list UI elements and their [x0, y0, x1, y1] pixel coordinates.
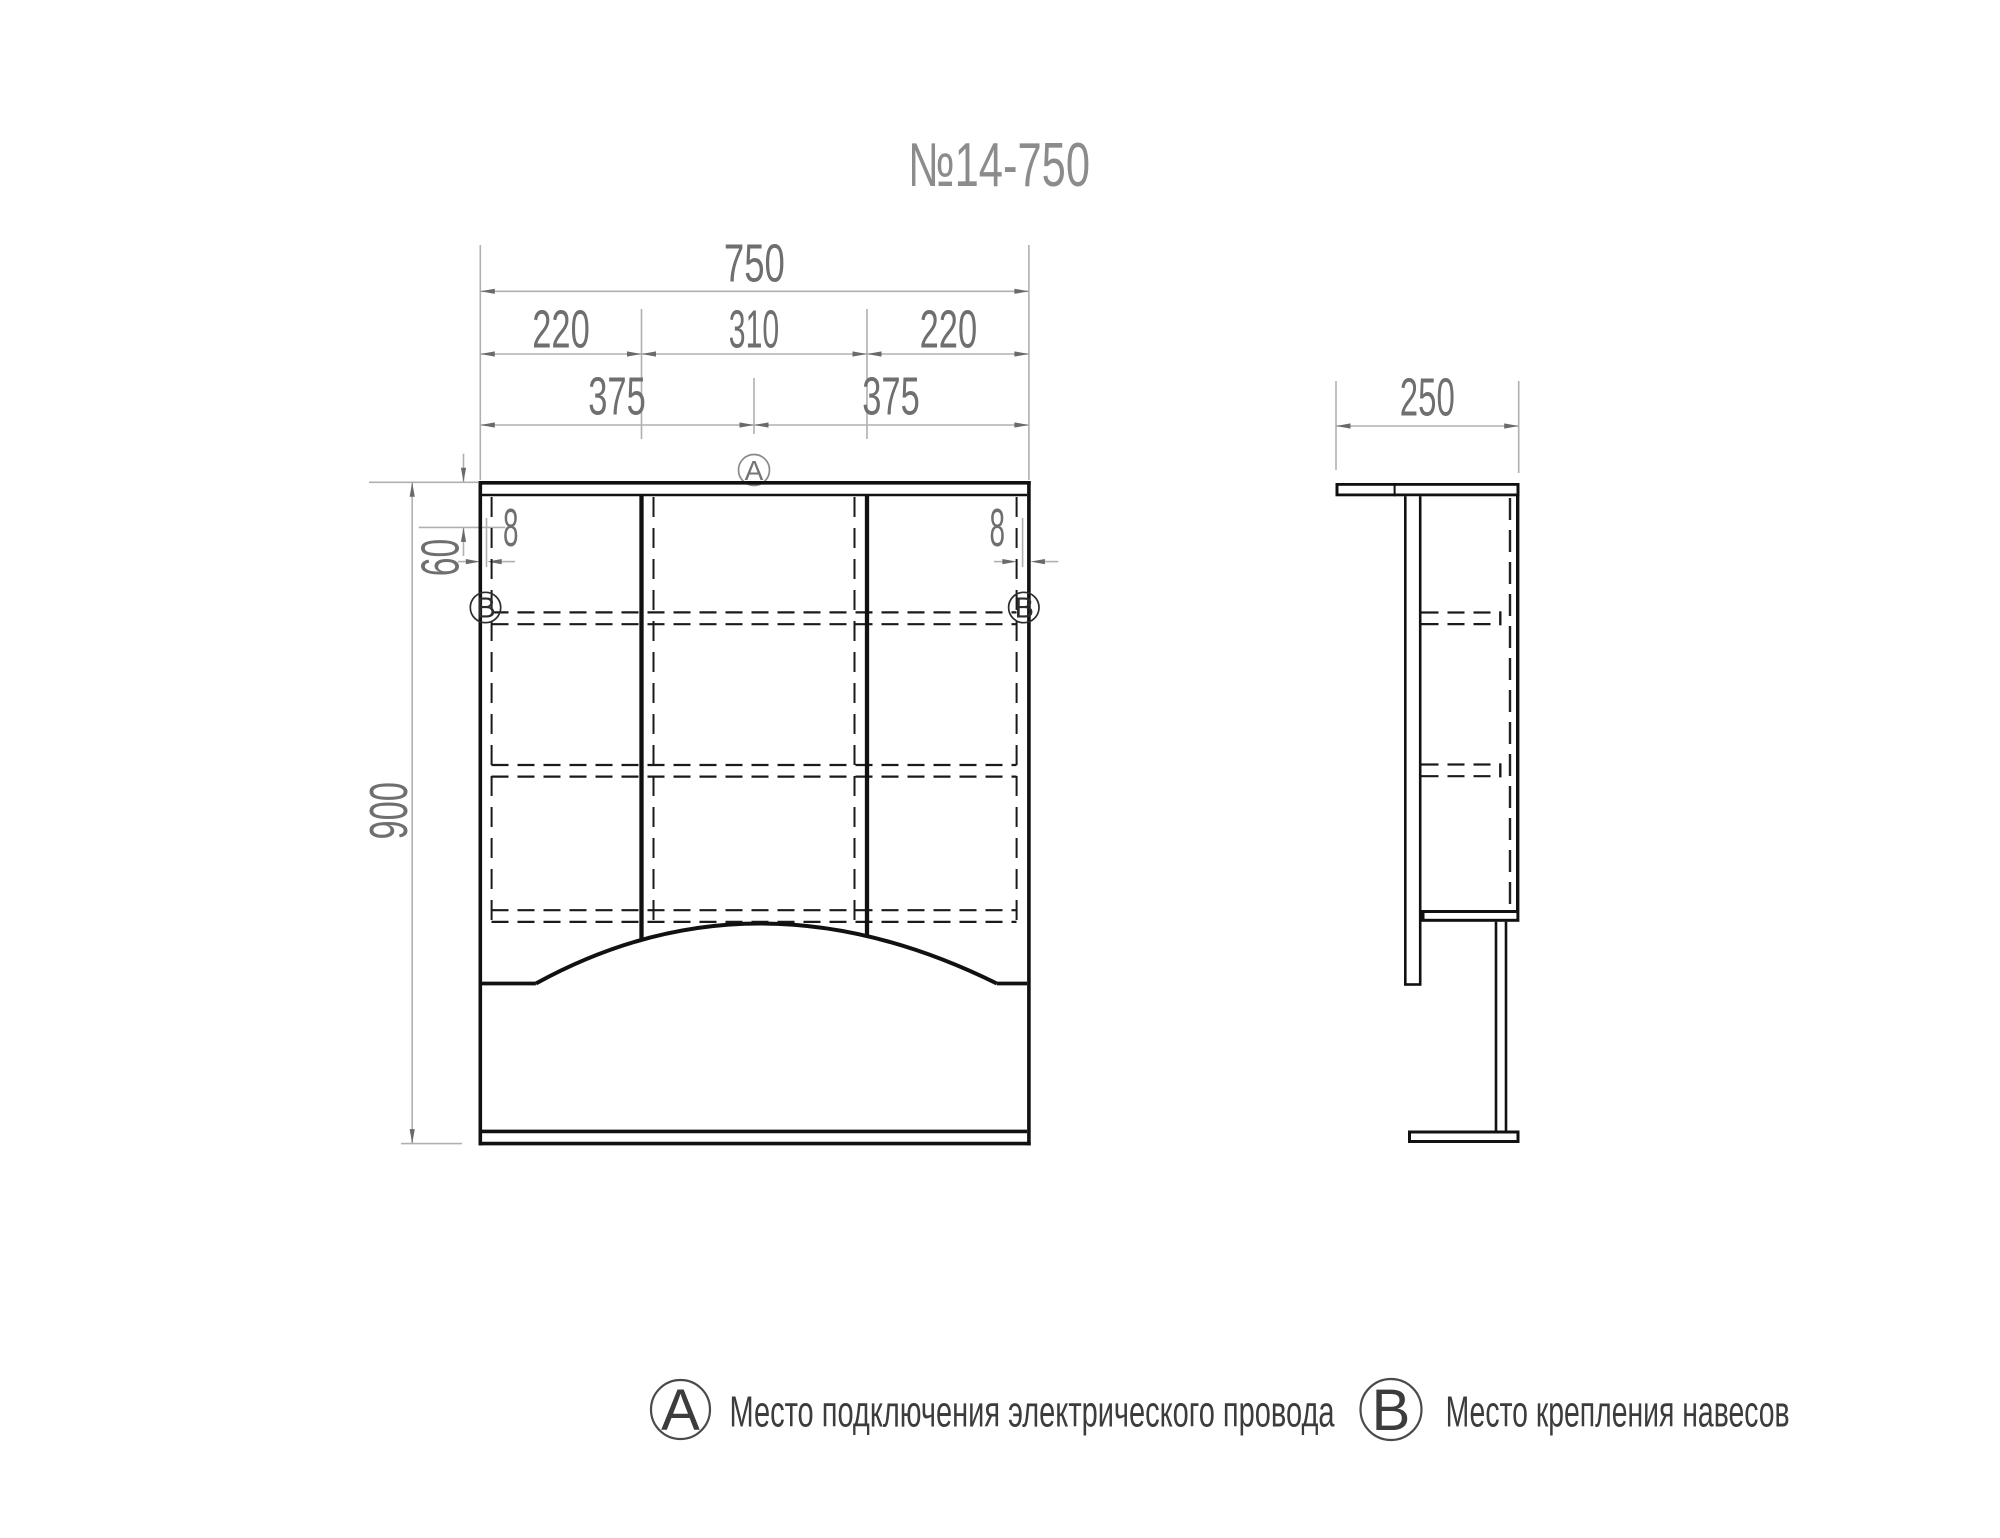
svg-text:B: B [1372, 1378, 1411, 1443]
svg-text:250: 250 [1400, 368, 1455, 428]
svg-text:Место крепления навесов: Место крепления навесов [1446, 1388, 1790, 1437]
svg-text:8: 8 [990, 498, 1006, 558]
svg-text:750: 750 [724, 234, 785, 294]
svg-text:8: 8 [503, 498, 519, 558]
svg-text:375: 375 [862, 367, 920, 427]
svg-text:220: 220 [532, 300, 590, 360]
svg-text:B: B [476, 593, 495, 625]
svg-text:60: 60 [411, 539, 471, 577]
svg-text:375: 375 [588, 367, 646, 427]
svg-text:Место подключения электрическо: Место подключения электрического провода [730, 1388, 1335, 1437]
svg-text:A: A [661, 1378, 700, 1443]
svg-text:220: 220 [920, 300, 978, 360]
svg-text:310: 310 [729, 300, 779, 360]
svg-text:900: 900 [359, 782, 419, 840]
svg-text:№14-750: №14-750 [908, 131, 1090, 200]
svg-text:B: B [1015, 593, 1034, 625]
